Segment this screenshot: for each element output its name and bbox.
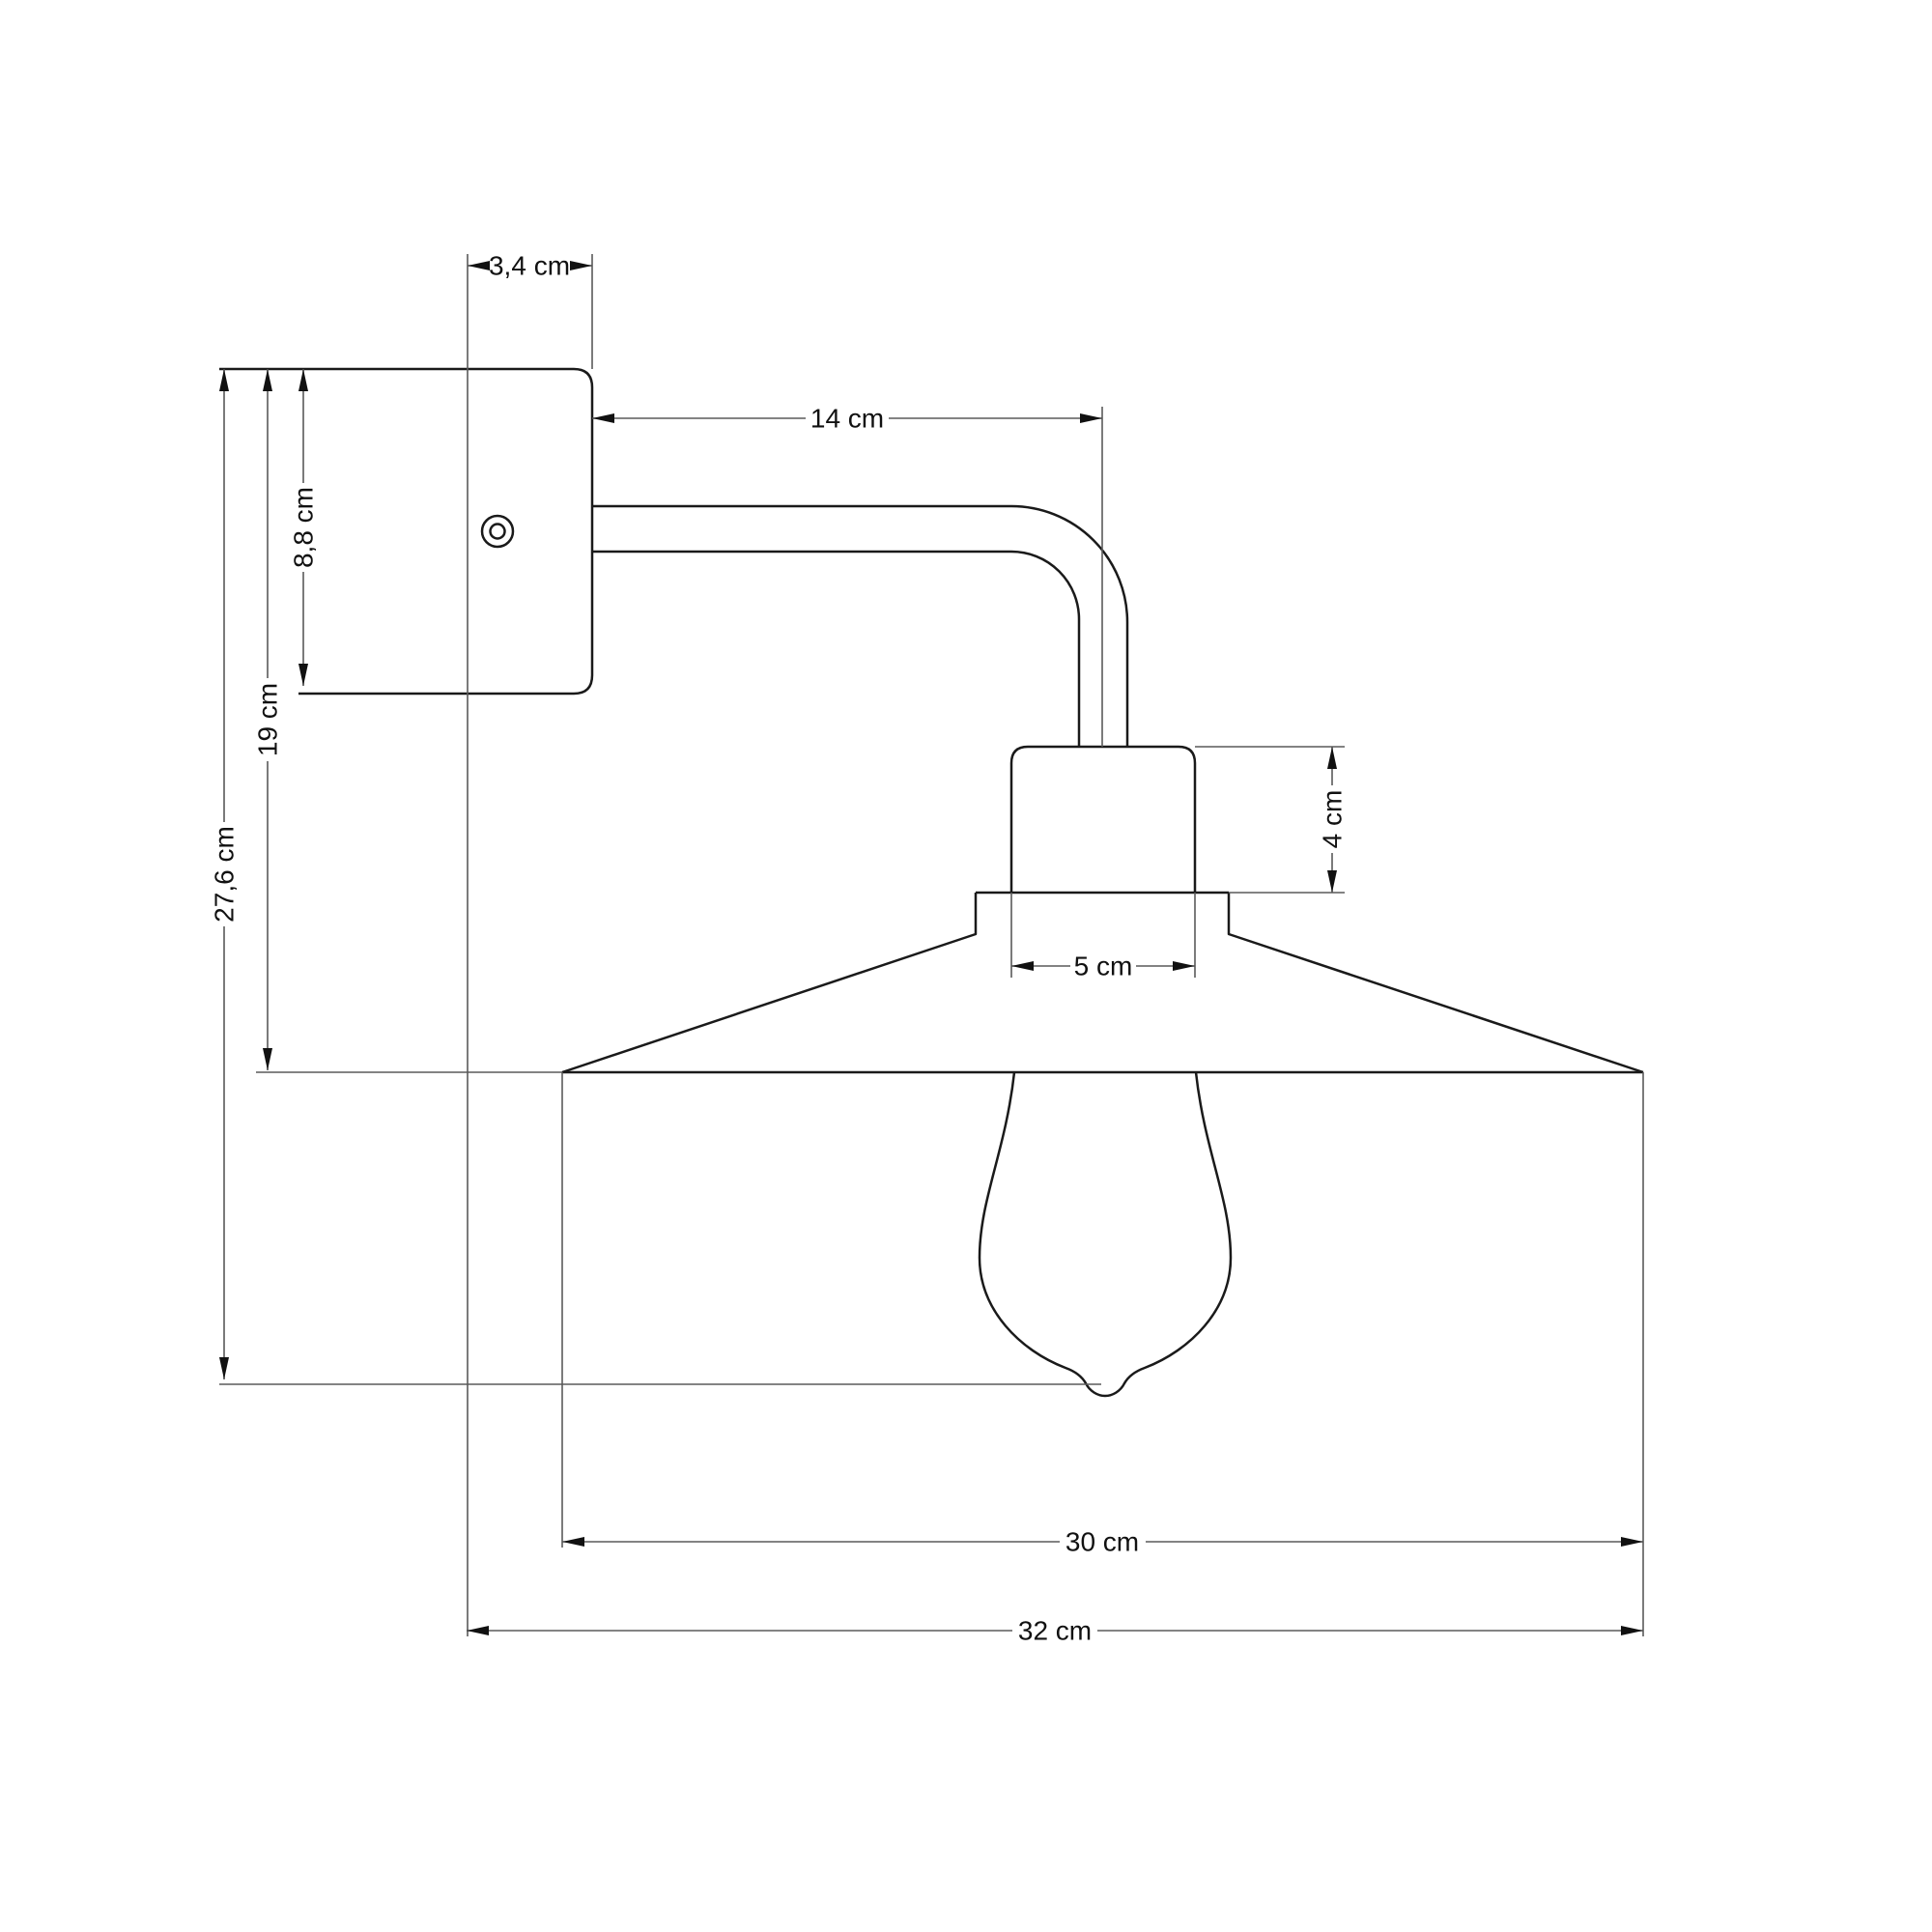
dim-label-total-height: 27,6 cm (210, 826, 240, 923)
socket-outline (1011, 747, 1195, 893)
dim-label-total-depth: 32 cm (1018, 1616, 1092, 1646)
arrow-up-icon (298, 369, 308, 391)
arrow-left-icon (468, 261, 490, 270)
arrow-right-icon (1173, 961, 1195, 971)
technical-drawing-page: 3,4 cm 14 cm 8,8 cm 19 cm (0, 0, 1932, 1932)
arrow-left-icon (1011, 961, 1034, 971)
shade-right-cone (1229, 893, 1643, 1072)
dimension-total-height: 27,6 cm (210, 369, 1102, 1384)
shade-left-cone (562, 893, 976, 1072)
arrow-left-icon (592, 413, 614, 423)
arrow-up-icon (263, 369, 272, 391)
mounting-plate-outline (219, 369, 592, 694)
dimension-plate-depth: 3,4 cm (468, 251, 592, 370)
dimension-shade-diameter: 30 cm (562, 1072, 1643, 1557)
arrow-up-icon (1327, 747, 1337, 769)
dim-label-socket-height: 4 cm (1318, 790, 1348, 849)
arrow-down-icon (219, 1357, 229, 1379)
dimension-socket-width: 5 cm (1011, 893, 1195, 981)
bulb-silhouette (980, 1072, 1231, 1396)
arrow-down-icon (263, 1048, 272, 1070)
arrow-left-icon (562, 1537, 584, 1547)
dim-label-plate-depth: 3,4 cm (489, 251, 570, 281)
arm-inner-edge (592, 552, 1079, 747)
arrow-up-icon (219, 369, 229, 391)
dimension-arm-length: 14 cm (592, 404, 1102, 748)
arrow-right-icon (1621, 1537, 1643, 1547)
arrow-down-icon (1327, 870, 1337, 893)
arrow-right-icon (1621, 1626, 1643, 1635)
arrow-right-icon (1080, 413, 1102, 423)
mounting-plate (219, 369, 592, 694)
screw-hole-icon (482, 516, 513, 547)
dim-label-plate-height: 8,8 cm (289, 487, 319, 568)
dimension-total-depth: 32 cm (467, 1616, 1643, 1646)
dimension-socket-height: 4 cm (1195, 747, 1348, 893)
dim-label-shade-diameter: 30 cm (1065, 1527, 1139, 1557)
lamp-socket (1011, 747, 1195, 893)
wall-lamp-dimension-drawing: 3,4 cm 14 cm 8,8 cm 19 cm (0, 0, 1932, 1932)
light-bulb (980, 1072, 1231, 1396)
dimension-plate-height: 8,8 cm (289, 369, 319, 686)
curved-arm (592, 506, 1127, 747)
dim-label-socket-width: 5 cm (1074, 952, 1133, 981)
conical-lampshade (562, 893, 1643, 1072)
screw-hole-inner-icon (491, 525, 505, 539)
dim-label-arm-length: 14 cm (810, 404, 884, 434)
arrow-left-icon (467, 1626, 489, 1635)
dimension-plate-to-shade: 19 cm (253, 369, 563, 1072)
arm-outer-edge (592, 506, 1127, 747)
arrow-right-icon (570, 261, 592, 270)
arrow-down-icon (298, 664, 308, 686)
dim-label-plate-to-shade: 19 cm (253, 683, 283, 756)
